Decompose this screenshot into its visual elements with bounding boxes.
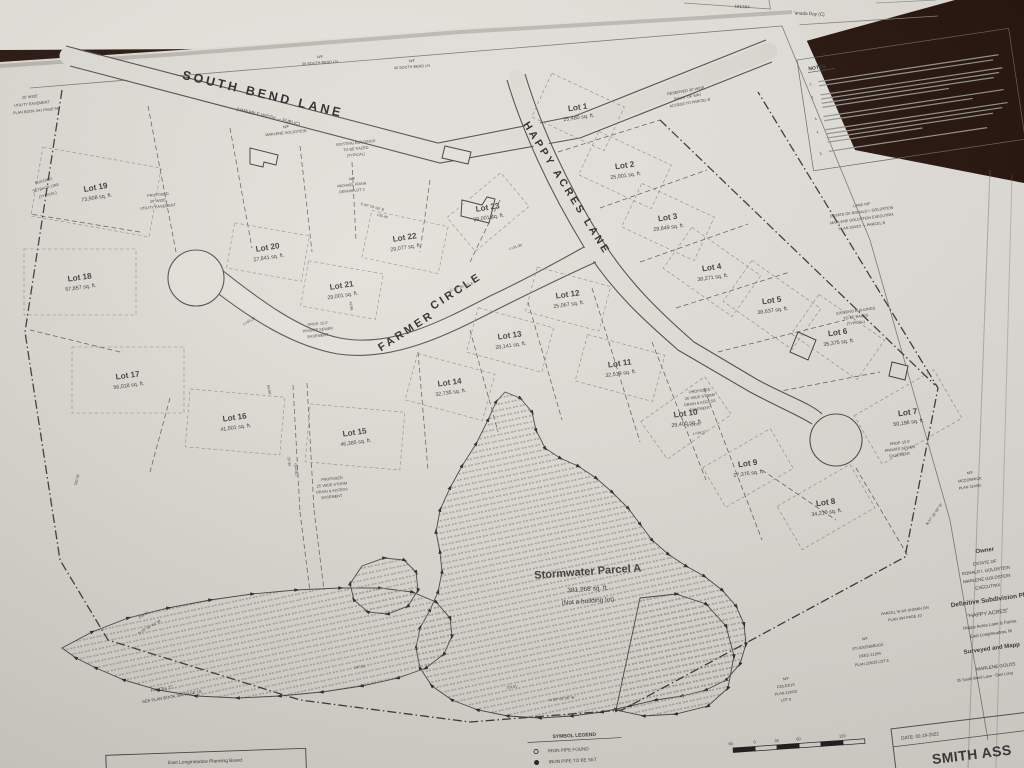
calendar-page-number: 181/184 (734, 4, 750, 10)
annotation: N/F (283, 125, 290, 130)
iron-pipe-to-be-set-icon (534, 760, 538, 764)
east-cul-de-sac (810, 414, 862, 466)
annotation: N/F (317, 55, 324, 59)
scale-tick: 120 (839, 733, 847, 739)
annotation: N/F (349, 177, 356, 182)
plan-drawing: 181/184 Canada Day (C) (0, 0, 1024, 768)
west-cul-de-sac (168, 250, 224, 306)
annotation: N/F (409, 59, 416, 63)
subdivision-plan-photo: 181/184 Canada Day (C) (0, 0, 1024, 768)
